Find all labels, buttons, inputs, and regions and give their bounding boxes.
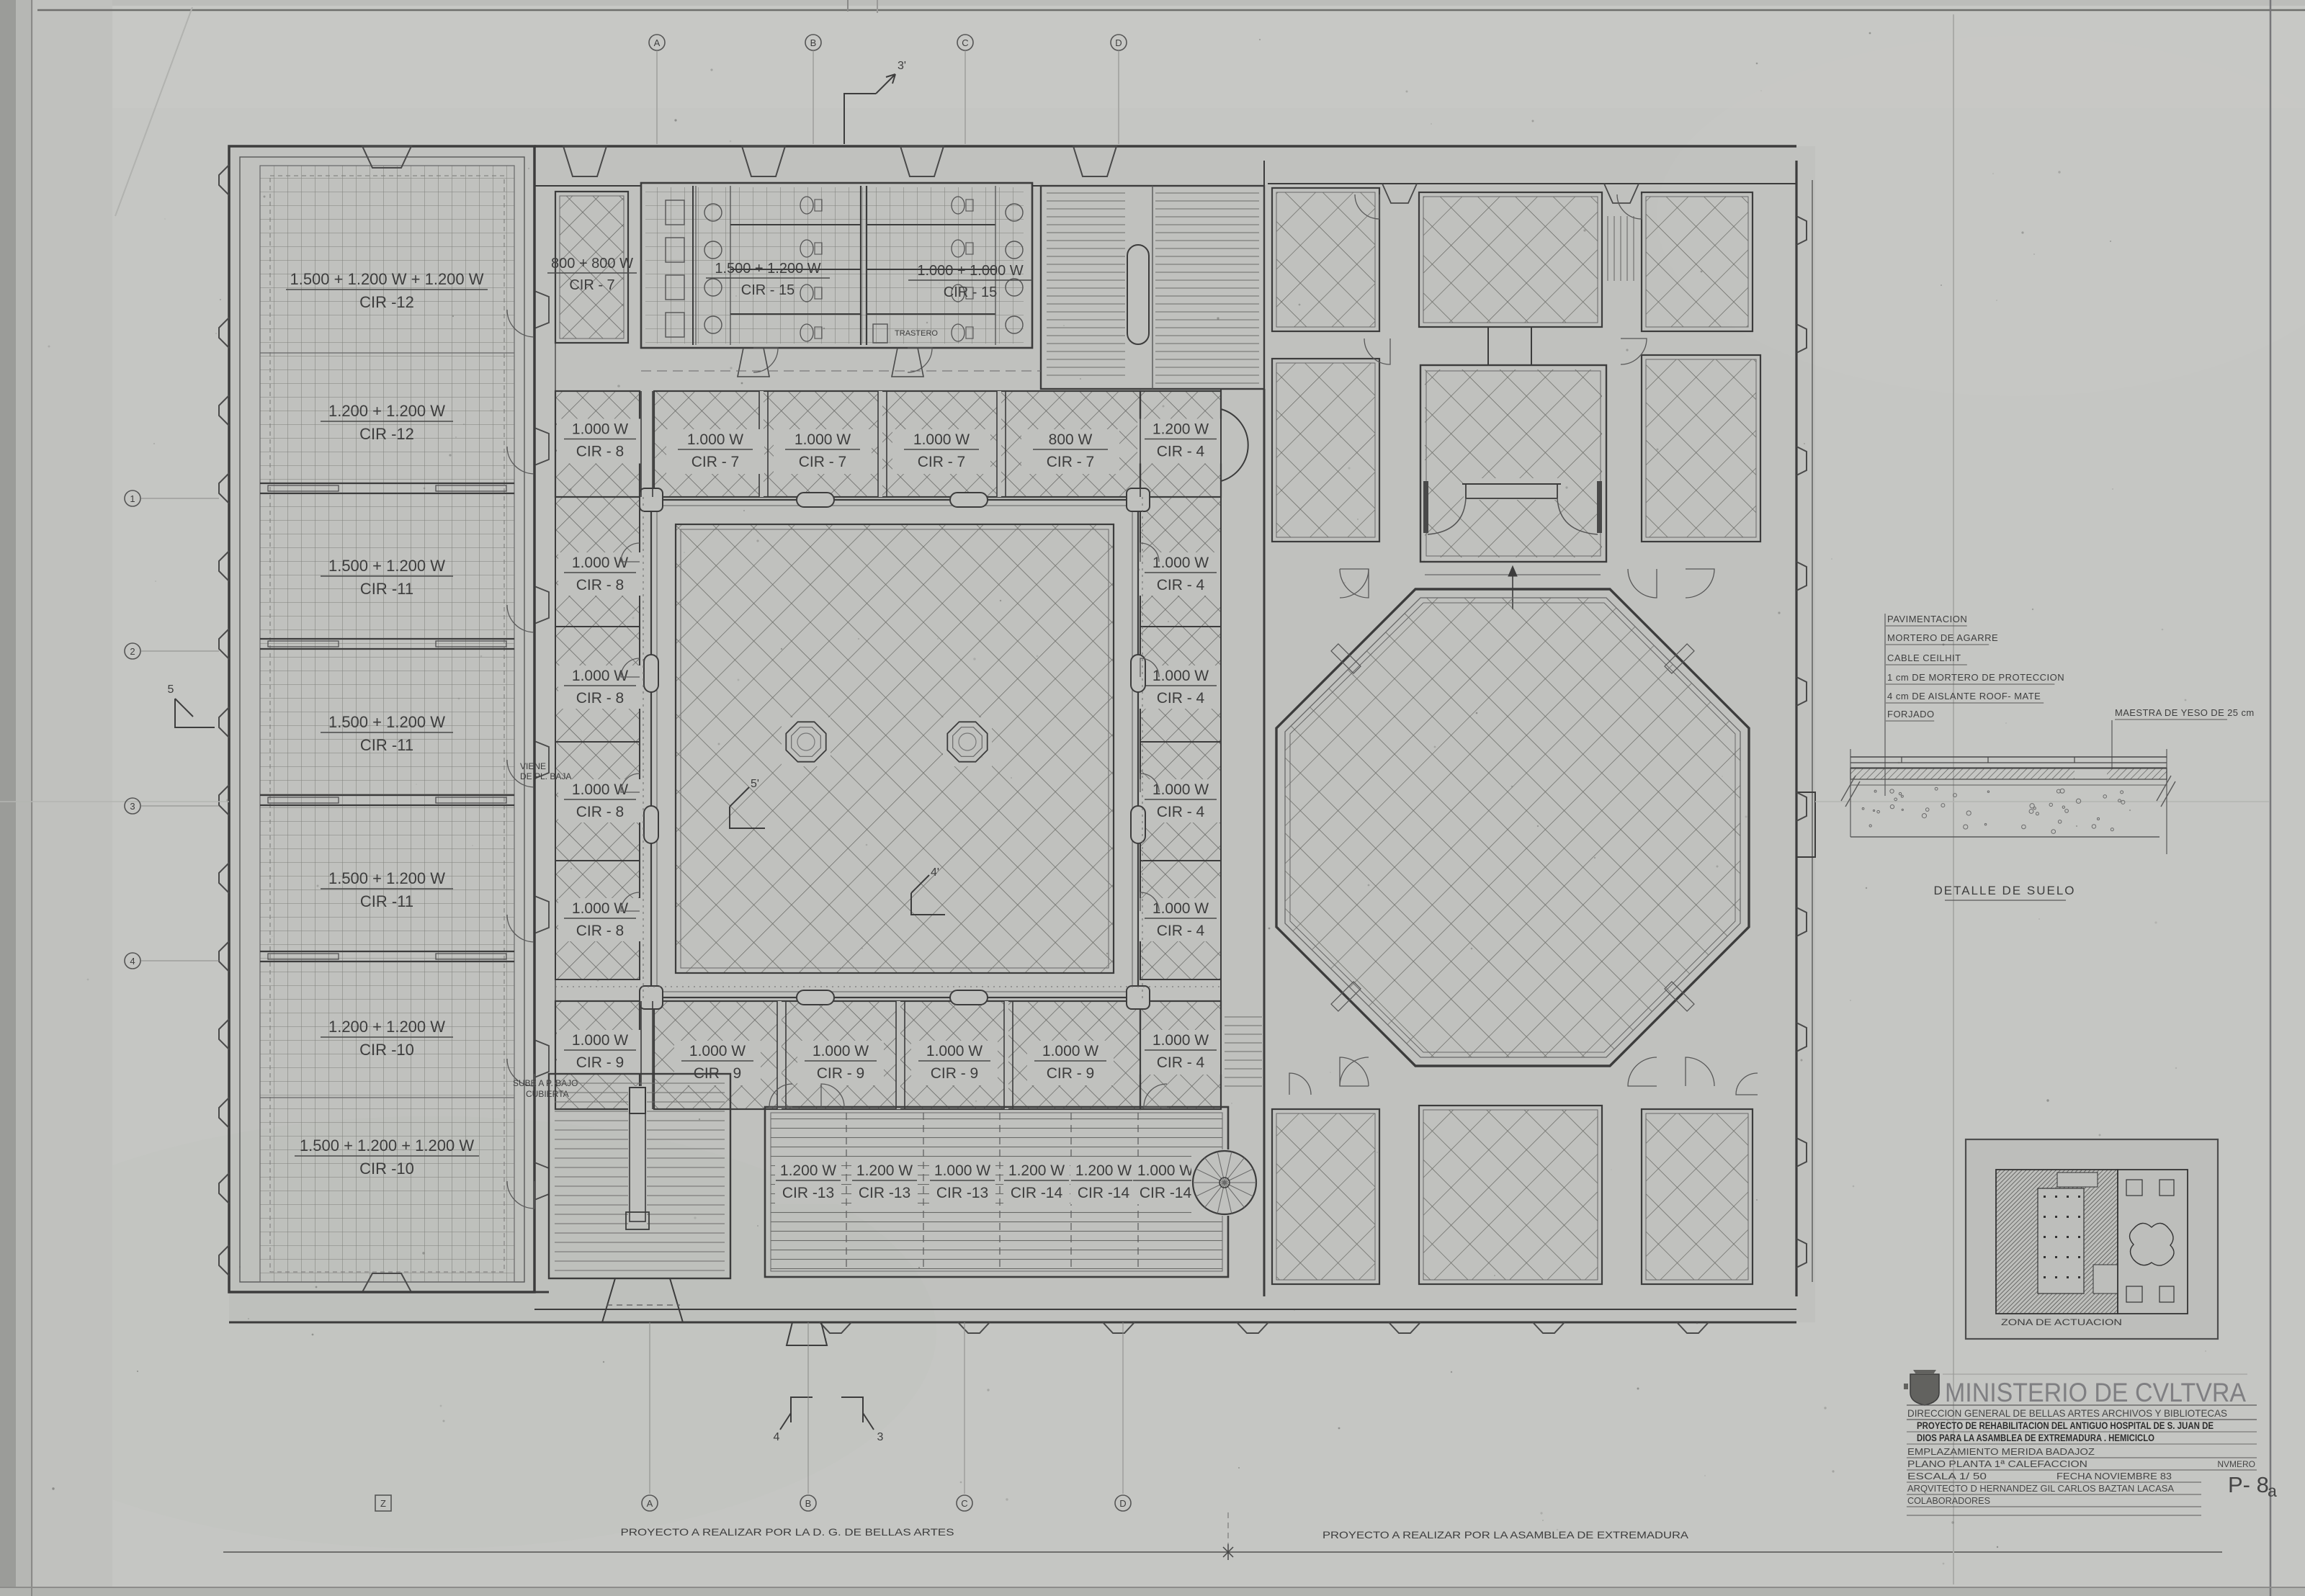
svg-text:COLABORADORES: COLABORADORES (1907, 1495, 1990, 1506)
svg-text:2: 2 (130, 646, 135, 657)
svg-text:3: 3 (877, 1431, 884, 1443)
svg-text:NVMERO: NVMERO (2217, 1459, 2255, 1469)
svg-text:DIOS PARA LA ASAMBLEA DE EXTRE: DIOS PARA LA ASAMBLEA DE EXTREMADURA . H… (1917, 1433, 2154, 1443)
svg-text:1: 1 (130, 493, 135, 504)
svg-text:PROYECTO DE REHABILITACION DEL: PROYECTO DE REHABILITACION DEL ANTIGUO H… (1917, 1420, 2214, 1431)
svg-text:C: C (961, 1498, 967, 1509)
svg-text:D: D (1115, 37, 1122, 48)
svg-text:FECHA NOVIEMBRE 83: FECHA NOVIEMBRE 83 (2056, 1471, 2172, 1481)
svg-text:B: B (805, 1498, 812, 1509)
svg-text:ESCALA 1/ 50: ESCALA 1/ 50 (1907, 1471, 1987, 1481)
svg-text:PLANO PLANTA 1ª CAL: PLANO PLANTA 1ª CALEFACCION (1907, 1458, 2087, 1469)
svg-text:CABLE CEILHIT: CABLE CEILHIT (1887, 653, 1961, 663)
svg-text:MINISTERIO DE CVLTVRA: MINISTERIO DE CVLTVRA (1945, 1378, 2246, 1407)
svg-text:PROYECTO A REALIZAR POR: PROYECTO A REALIZAR POR LA ASAMBLEA DE E… (1322, 1529, 1689, 1541)
svg-text:D: D (1119, 1498, 1126, 1509)
svg-text:1 cm DE MORTERO DE PROTECCION: 1 cm DE MORTERO DE PROTECCION (1887, 672, 2064, 683)
svg-text:3': 3' (898, 60, 906, 72)
svg-text:DIRECCION GENERAL DE BELLAS: DIRECCION GENERAL DE BELLAS ARTES ARCHIV… (1907, 1407, 2227, 1419)
svg-text:4: 4 (130, 956, 135, 967)
svg-text:P- 8: P- 8 (2228, 1472, 2269, 1497)
svg-text:4: 4 (774, 1431, 780, 1443)
svg-text:4 cm DE AISLANTE ROOF- MATE: 4 cm DE AISLANTE ROOF- MATE (1887, 691, 2041, 701)
svg-text:5: 5 (168, 683, 174, 696)
svg-text:PROYECTO A REALIZAR POR: PROYECTO A REALIZAR POR LA D. G. DE BELL… (621, 1526, 954, 1538)
svg-text:MAESTRA DE YESO DE 25 cm: MAESTRA DE YESO DE 25 cm (2115, 707, 2255, 718)
svg-text:DETALLE DE SUELO: DETALLE DE SUELO (1933, 884, 2075, 897)
svg-text:FORJADO: FORJADO (1887, 709, 1935, 719)
svg-text:A: A (647, 1498, 653, 1509)
svg-text:B: B (810, 37, 817, 48)
svg-text:a: a (2268, 1481, 2277, 1500)
svg-text:C: C (962, 37, 968, 48)
svg-text:PAVIMENTACION: PAVIMENTACION (1887, 614, 1967, 624)
svg-text:EMPLAZAMIENTO MERIDA BA: EMPLAZAMIENTO MERIDA BADAJOZ (1907, 1446, 2095, 1457)
svg-text:A: A (654, 37, 661, 48)
svg-text:MORTERO DE AGARRE: MORTERO DE AGARRE (1887, 632, 1998, 643)
svg-text:ZONA DE ACTUACION: ZONA DE ACTUACION (2001, 1317, 2122, 1327)
svg-text:ARQVITECTO D HERNANDEZ G: ARQVITECTO D HERNANDEZ GIL CARLOS BAZTAN… (1907, 1483, 2174, 1494)
svg-text:3: 3 (130, 801, 135, 812)
svg-text:Z: Z (380, 1498, 386, 1509)
